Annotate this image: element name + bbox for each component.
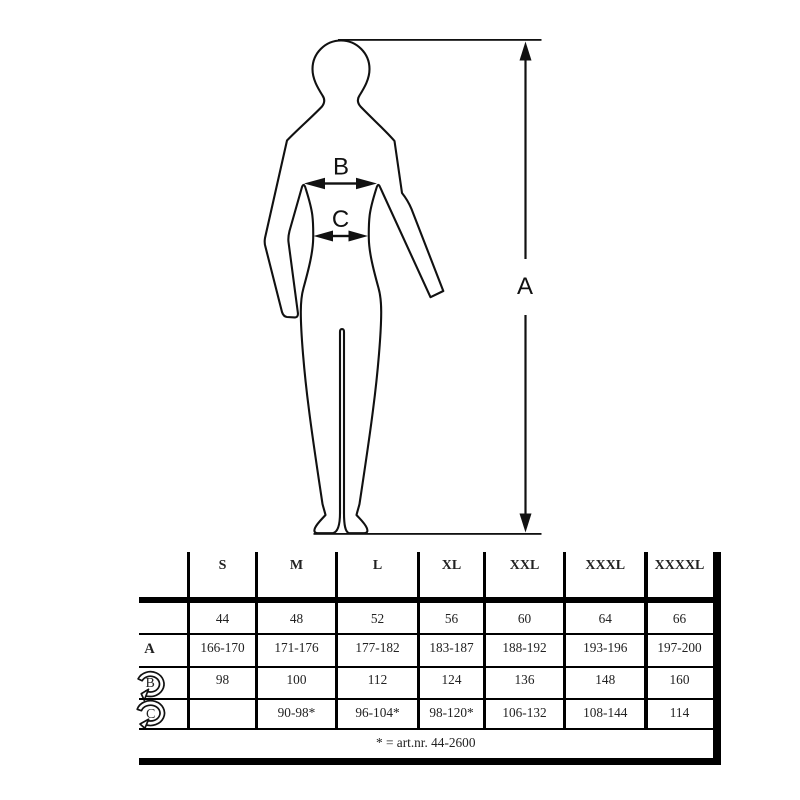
svg-text:B: B (146, 676, 155, 691)
svg-text:C: C (146, 707, 155, 722)
svg-text:A: A (517, 273, 533, 300)
svg-text:B: B (333, 154, 349, 181)
svg-text:C: C (332, 206, 349, 233)
